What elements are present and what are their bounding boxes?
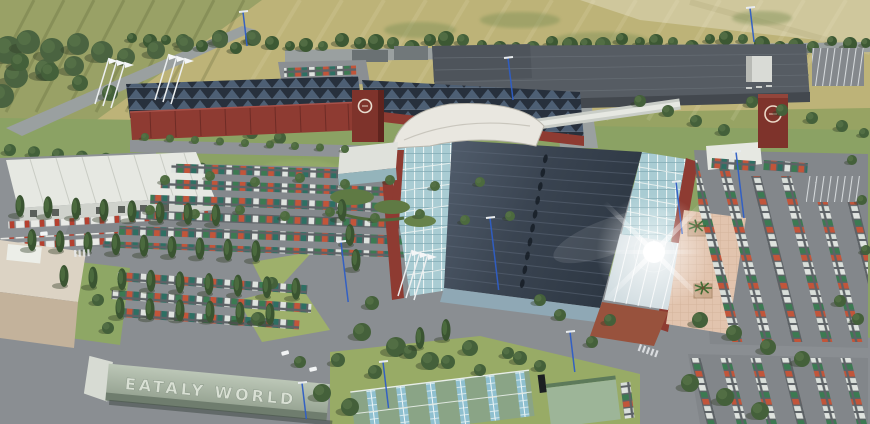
poplar-highlight xyxy=(168,238,173,252)
tree-highlight xyxy=(369,35,378,44)
tree-highlight xyxy=(144,35,152,43)
tree-highlight xyxy=(739,35,745,41)
tree-highlight xyxy=(231,43,238,50)
tree-highlight xyxy=(319,42,325,48)
tree-highlight xyxy=(295,357,302,364)
tree-highlight xyxy=(42,64,52,74)
tree-highlight xyxy=(635,96,642,103)
tree-highlight xyxy=(752,403,762,413)
southwest-building xyxy=(0,240,86,348)
poplar-highlight xyxy=(224,241,229,255)
tree-highlight xyxy=(844,38,852,46)
tree-highlight xyxy=(535,361,542,368)
tree-highlight xyxy=(691,116,698,123)
poplar-highlight xyxy=(416,329,421,343)
tree-highlight xyxy=(213,33,222,42)
lamp-head xyxy=(672,181,681,182)
tree-highlight xyxy=(555,310,562,317)
tree-highlight xyxy=(388,38,395,45)
tree-highlight xyxy=(807,113,814,120)
tree-highlight xyxy=(727,326,736,335)
tree-highlight xyxy=(267,141,271,145)
tree-highlight xyxy=(458,35,465,42)
tree-highlight xyxy=(93,43,105,55)
poplar-highlight xyxy=(205,275,210,289)
tree-highlight xyxy=(73,76,82,85)
tree-highlight xyxy=(636,38,642,44)
poplar-highlight xyxy=(156,204,161,218)
tree-highlight xyxy=(93,295,100,302)
tree-highlight xyxy=(275,133,282,140)
crosswalk-bar xyxy=(78,250,81,257)
tree-highlight xyxy=(475,365,482,372)
tree-highlight xyxy=(682,375,692,385)
crosswalk-bar xyxy=(83,249,86,256)
tree-highlight xyxy=(29,147,36,154)
tree-highlight xyxy=(251,178,257,184)
poplar-highlight xyxy=(100,201,105,215)
tree-highlight xyxy=(747,97,754,104)
palm-trunk xyxy=(701,286,704,289)
warehouse-roof-low xyxy=(432,44,532,82)
tree-highlight xyxy=(442,356,450,364)
tree-highlight xyxy=(663,106,670,113)
tree-highlight xyxy=(535,295,542,302)
tree-highlight xyxy=(162,36,168,42)
poplar-highlight xyxy=(292,280,297,294)
tree-highlight xyxy=(503,348,510,355)
penthouse-shadow xyxy=(746,56,752,82)
tree-highlight xyxy=(860,129,866,135)
poplar-highlight xyxy=(263,278,268,292)
lamp-head xyxy=(379,361,388,362)
poplar-highlight xyxy=(338,201,343,215)
tree-highlight xyxy=(808,42,815,49)
tree-highlight xyxy=(506,212,512,218)
tree-highlight xyxy=(342,399,352,409)
tree-highlight xyxy=(439,32,448,41)
tree-highlight xyxy=(862,39,868,45)
tree-highlight xyxy=(206,172,212,178)
tree-highlight xyxy=(650,35,658,43)
tree-highlight xyxy=(717,389,727,399)
tree-highlight xyxy=(118,49,128,59)
tree-highlight xyxy=(605,315,612,322)
poplar-highlight xyxy=(72,200,77,214)
tree-highlight xyxy=(858,196,864,202)
poplar-highlight xyxy=(140,237,145,251)
tree-highlight xyxy=(693,313,702,322)
tree-highlight xyxy=(587,337,594,344)
tree-highlight xyxy=(142,134,146,138)
tree-highlight xyxy=(296,174,302,180)
tree-highlight xyxy=(366,297,374,305)
tree-highlight xyxy=(314,385,324,395)
poplar-highlight xyxy=(442,321,447,335)
tree-highlight xyxy=(281,212,287,218)
tree-highlight xyxy=(369,366,377,374)
tree-highlight xyxy=(853,314,860,321)
poplar-highlight xyxy=(112,235,117,249)
tree-highlight xyxy=(431,182,437,188)
tree-highlight xyxy=(828,37,834,43)
tree-highlight xyxy=(386,176,392,182)
southeast-parking-apron xyxy=(688,354,868,424)
tree-highlight xyxy=(179,37,188,46)
tree-highlight xyxy=(242,140,246,144)
tree-highlight xyxy=(103,323,110,330)
tree-highlight xyxy=(53,149,60,156)
poplar-highlight xyxy=(60,267,65,281)
lamp-head xyxy=(239,11,248,12)
poplar-highlight xyxy=(266,305,271,319)
crosswalk-bar xyxy=(87,249,90,256)
tree-highlight xyxy=(706,35,712,41)
poplar-highlight xyxy=(128,202,133,216)
tree-highlight xyxy=(416,210,422,216)
lamp-head xyxy=(732,151,741,152)
poplar-highlight xyxy=(147,272,152,286)
tree-highlight xyxy=(355,38,362,45)
poplar-highlight xyxy=(56,232,61,246)
tree-highlight xyxy=(461,216,467,222)
tree-highlight xyxy=(266,37,274,45)
tree-highlight xyxy=(354,324,364,334)
logo-tower-west xyxy=(352,90,378,142)
poplar-highlight xyxy=(89,269,94,283)
tree-highlight xyxy=(848,156,854,162)
lamp-head xyxy=(486,217,495,218)
tree-highlight xyxy=(69,35,81,47)
tree-highlight xyxy=(12,54,22,64)
tree-highlight xyxy=(777,105,784,112)
tree-highlight xyxy=(18,32,31,45)
tree-highlight xyxy=(128,34,134,40)
lamp-head xyxy=(298,382,307,383)
tree-highlight xyxy=(835,296,842,303)
outbuilding xyxy=(394,46,428,60)
tree-highlight xyxy=(252,313,260,321)
crosswalk-bar xyxy=(74,250,77,257)
crop-patch xyxy=(732,11,792,25)
garden-bed xyxy=(374,200,410,214)
poplar-highlight xyxy=(84,234,89,248)
tree-highlight xyxy=(476,178,482,184)
empty-stall-stripes xyxy=(812,48,864,86)
tree-highlight xyxy=(167,135,171,139)
tower-shade xyxy=(378,90,384,142)
tree-highlight xyxy=(581,39,588,46)
tree-highlight xyxy=(795,352,804,361)
tree-highlight xyxy=(66,58,77,69)
tree-highlight xyxy=(192,137,196,141)
poplar-highlight xyxy=(184,205,189,219)
lamp-head xyxy=(746,7,755,8)
lamp-head xyxy=(566,331,575,332)
aerial-render-stage: EATALY WORLD xyxy=(0,0,870,424)
poplar-highlight xyxy=(146,300,151,314)
tree-highlight xyxy=(837,121,844,128)
tree-highlight xyxy=(388,339,399,350)
tree-highlight xyxy=(5,145,12,152)
poplar-highlight xyxy=(346,226,351,240)
tree-highlight xyxy=(336,34,344,42)
poplar-highlight xyxy=(16,197,21,211)
poplar-highlight xyxy=(44,198,49,212)
tree-highlight xyxy=(720,32,728,40)
garden-bed xyxy=(330,189,374,205)
tree-highlight xyxy=(514,352,522,360)
poplar-highlight xyxy=(118,270,123,284)
poplar-highlight xyxy=(252,242,257,256)
tree-highlight xyxy=(146,206,152,212)
poplar-highlight xyxy=(28,231,33,245)
tree-highlight xyxy=(161,176,167,182)
tree-highlight xyxy=(286,42,292,48)
poplar-highlight xyxy=(236,304,241,318)
tree-highlight xyxy=(341,180,347,186)
tree-highlight xyxy=(862,246,868,252)
tree-highlight xyxy=(217,138,221,142)
tree-highlight xyxy=(300,39,308,47)
poplar-highlight xyxy=(206,303,211,317)
tree-highlight xyxy=(422,353,432,363)
tree-highlight xyxy=(669,38,675,44)
tree-highlight xyxy=(371,214,377,220)
poplar-highlight xyxy=(176,301,181,315)
tree-highlight xyxy=(326,208,332,214)
tree-highlight xyxy=(248,32,256,40)
crop-patch xyxy=(480,12,560,28)
tree-highlight xyxy=(617,34,624,41)
lamp-head xyxy=(504,57,513,58)
tree-highlight xyxy=(197,41,204,48)
tree-highlight xyxy=(236,206,242,212)
aerial-render: EATALY WORLD xyxy=(0,0,870,424)
tree-highlight xyxy=(463,341,472,350)
tree-highlight xyxy=(547,37,554,44)
tree-highlight xyxy=(342,146,346,150)
tree-highlight xyxy=(292,143,296,147)
tree-highlight xyxy=(719,125,726,132)
poplar-highlight xyxy=(176,273,181,287)
tree-highlight xyxy=(317,144,321,148)
poplar-highlight xyxy=(234,277,239,291)
tree-highlight xyxy=(148,42,158,52)
poplar-highlight xyxy=(212,206,217,220)
poplar-highlight xyxy=(196,239,201,253)
poplar-highlight xyxy=(116,299,121,313)
tree-highlight xyxy=(42,40,55,53)
poplar-highlight xyxy=(352,251,357,265)
lamp-head xyxy=(337,241,346,242)
tree-highlight xyxy=(332,354,340,362)
tree-highlight xyxy=(761,340,770,349)
tree-highlight xyxy=(425,35,432,42)
car xyxy=(40,231,48,236)
